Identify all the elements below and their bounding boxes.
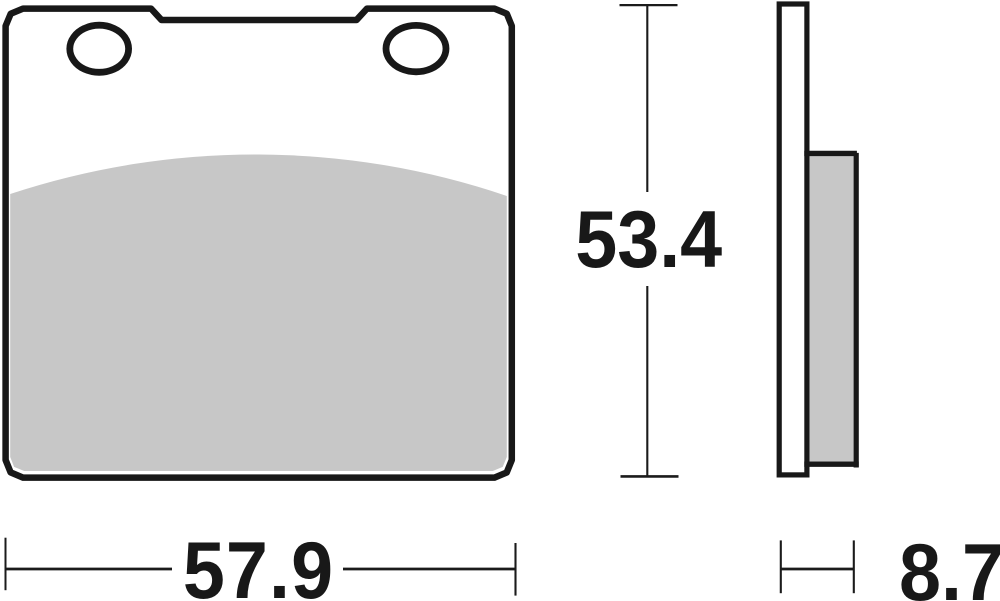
svg-text:8.7: 8.7 <box>899 527 1000 601</box>
svg-text:53.4: 53.4 <box>575 194 722 285</box>
svg-text:57.9: 57.9 <box>183 525 334 601</box>
